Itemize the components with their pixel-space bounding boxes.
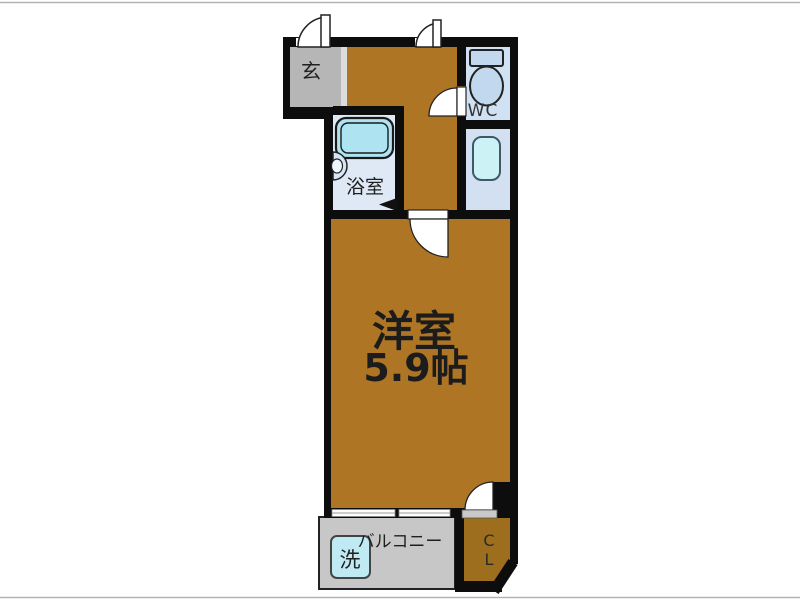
entrance-door-leaf [321, 15, 330, 47]
toilet-bowl-icon [470, 67, 503, 106]
wall-closet-left [455, 510, 464, 592]
floorplan-image: 玄 浴室 WC 洋室 5.9帖 バルコニー 洗 C L [0, 0, 800, 600]
wall-wc-left-lower [457, 116, 466, 219]
wall-left-upper [283, 37, 290, 119]
closet-label-l: L [485, 550, 494, 569]
wall-bath-top [333, 106, 404, 115]
sink-icon [473, 137, 500, 180]
washbasin-bowl [332, 159, 343, 173]
closet-label-c: C [483, 531, 494, 550]
wall-divider-left [324, 210, 408, 219]
main-room-door-leaf [408, 210, 448, 219]
closet-sliding-door [462, 510, 497, 518]
wall-wc-bottom [457, 120, 518, 129]
wall-divider-right [448, 210, 518, 219]
genkan-label: 玄 [301, 59, 321, 83]
washer-label: 洗 [340, 548, 361, 572]
wc-door-leaf [457, 87, 466, 116]
bathroom-label: 浴室 [346, 176, 384, 198]
balcony-label: バルコニー [358, 532, 443, 552]
floorplan-svg: 玄 浴室 WC 洋室 5.9帖 バルコニー 洗 C L [0, 0, 800, 600]
genkan-step-strip [341, 47, 347, 108]
wall-wc-left-upper [457, 37, 466, 86]
top-door-leaf [433, 20, 441, 47]
main-room-size-label: 5.9帖 [363, 346, 468, 390]
toilet-tank-icon [470, 50, 503, 66]
wall-main-left [324, 210, 331, 518]
balcony-windows [332, 510, 450, 517]
wc-label: WC [468, 101, 499, 121]
